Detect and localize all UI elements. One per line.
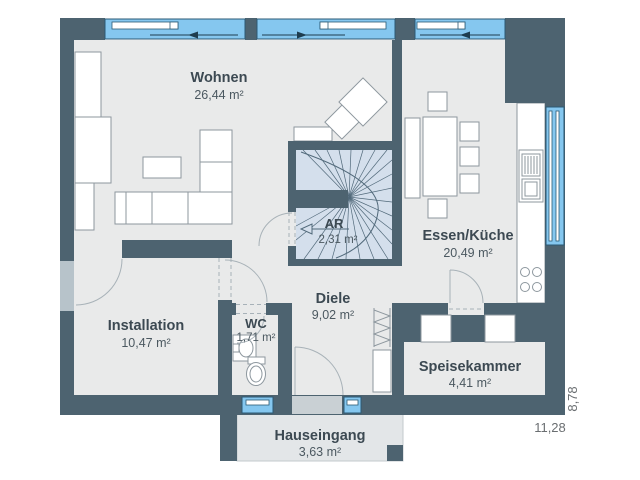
wall-wohnen-installation — [122, 240, 232, 258]
stair-landing-wall — [292, 190, 348, 208]
wall-installation-wc — [218, 300, 232, 395]
wall-wohnen-essen — [392, 40, 402, 266]
wall-stair-west — [288, 150, 296, 212]
area-hauseingang: 3,63 m² — [299, 445, 341, 459]
wall-pier — [395, 18, 415, 40]
dining-bench — [405, 118, 420, 198]
sideboard — [294, 127, 332, 141]
sofa-vertical — [200, 130, 232, 192]
wall-niche — [421, 315, 451, 342]
sofa-horizontal — [115, 192, 232, 224]
hall-cabinet — [373, 350, 391, 392]
wall-niche-pier — [451, 315, 485, 342]
shelf-unit — [75, 117, 111, 183]
wall-niche-pier — [404, 315, 421, 342]
label-wohnen: Wohnen — [191, 70, 248, 86]
wall-wc-right — [278, 303, 292, 395]
wall-speisekammer-top — [484, 303, 545, 315]
entrance-door-panel — [292, 396, 342, 414]
coffee-table — [143, 157, 181, 178]
area-diele: 9,02 m² — [312, 308, 354, 322]
wall-speisekammer-top — [392, 303, 448, 315]
wall-niche-pier — [515, 315, 545, 342]
wall-stair-bottom — [288, 259, 402, 266]
dimension-height: 8,78 — [565, 386, 580, 411]
label-essen-kueche: Essen/Küche — [422, 228, 513, 244]
porch-pillar — [387, 445, 403, 461]
wall-stub — [218, 240, 232, 258]
wall-stair-top — [288, 141, 402, 150]
label-installation: Installation — [108, 318, 185, 334]
floorplan-svg: Wohnen 26,44 m² Essen/Küche 20,49 m² Die… — [0, 0, 640, 480]
label-ar: AR — [325, 216, 344, 231]
area-speisekammer: 4,41 m² — [449, 376, 491, 390]
chair — [460, 174, 479, 193]
label-hauseingang: Hauseingang — [274, 428, 365, 444]
wall-pier — [245, 18, 257, 40]
shelf-unit — [75, 183, 94, 230]
wall-left — [60, 18, 74, 415]
dining-table — [423, 117, 457, 196]
chair — [428, 199, 447, 218]
floorplan-canvas: Wohnen 26,44 m² Essen/Küche 20,49 m² Die… — [0, 0, 640, 480]
area-essen-kueche: 20,49 m² — [443, 246, 492, 260]
label-diele: Diele — [316, 291, 351, 307]
area-wohnen: 26,44 m² — [194, 88, 243, 102]
door-left-exterior — [60, 261, 74, 311]
shelf-unit — [75, 52, 101, 117]
wall-speisekammer-left — [392, 315, 404, 395]
chair — [460, 147, 479, 166]
dimension-width: 11,28 — [534, 420, 566, 435]
area-wc: 1,71 m² — [237, 332, 276, 344]
area-installation: 10,47 m² — [121, 336, 170, 350]
wall-porch-side — [220, 415, 237, 461]
wall-stair-west — [288, 246, 296, 259]
wall-wc-top — [232, 303, 236, 315]
wall-top-right-corner — [505, 18, 565, 103]
label-wc: WC — [245, 316, 267, 331]
label-speisekammer: Speisekammer — [419, 359, 522, 375]
chair — [428, 92, 447, 111]
toilet-icon — [247, 357, 266, 386]
area-ar: 2,31 m² — [319, 234, 358, 246]
chair — [460, 122, 479, 141]
wall-niche — [485, 315, 515, 342]
sink-icon — [519, 150, 543, 202]
